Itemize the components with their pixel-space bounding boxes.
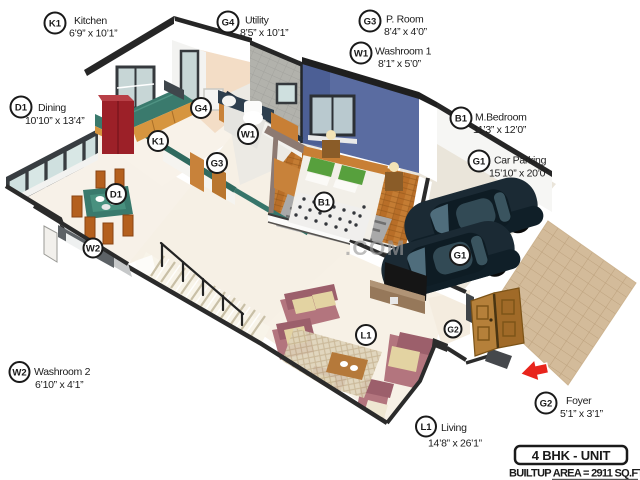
svg-text:W1: W1 [241,130,256,141]
svg-text:B1: B1 [318,198,331,209]
svg-text:G1: G1 [454,251,467,262]
svg-text:10’10” x 13’4”: 10’10” x 13’4” [25,115,85,127]
svg-text:L1: L1 [420,422,432,433]
svg-text:M.Bedroom: M.Bedroom [475,112,527,124]
svg-text:G3: G3 [364,17,377,28]
svg-text:Foyer: Foyer [566,395,592,407]
svg-text:.COM: .COM [345,237,406,260]
svg-text:11’3” x 12’0”: 11’3” x 12’0” [473,124,527,136]
svg-text:W1: W1 [354,49,369,60]
svg-text:14’8” x 26’1”: 14’8” x 26’1” [428,438,483,450]
svg-text:D1: D1 [15,103,28,114]
svg-text:P. Room: P. Room [386,14,424,26]
svg-text:8’1” x 5’0”: 8’1” x 5’0” [378,58,422,70]
svg-text:BUILTUP AREA = 2911 SQ.FT.: BUILTUP AREA = 2911 SQ.FT. [509,468,640,480]
svg-text:D1: D1 [110,190,123,201]
svg-text:Car Parking: Car Parking [494,155,547,167]
svg-text:G2: G2 [540,399,553,410]
svg-text:8’4” x 4’0”: 8’4” x 4’0” [384,26,428,38]
svg-text:G4: G4 [195,104,208,115]
svg-text:4 BHK - UNIT: 4 BHK - UNIT [532,448,611,463]
svg-text:6’10” x 4’1”: 6’10” x 4’1” [35,379,84,391]
svg-text:Washroom 2: Washroom 2 [34,366,91,378]
svg-text:B1: B1 [455,114,468,125]
svg-text:K1: K1 [152,137,165,148]
svg-text:8’5” x 10’1”: 8’5” x 10’1” [240,27,289,39]
svg-text:W2: W2 [12,368,26,379]
svg-text:Kitchen: Kitchen [74,15,107,27]
svg-text:G2: G2 [447,325,459,335]
svg-text:Living: Living [441,422,467,434]
svg-text:G1: G1 [473,157,486,168]
svg-text:Utility: Utility [245,15,270,27]
svg-text:Dining: Dining [38,102,66,114]
svg-text:G3: G3 [211,159,224,170]
svg-text:K1: K1 [49,19,62,30]
svg-text:W2: W2 [86,244,100,255]
svg-text:5’1” x 3’1”: 5’1” x 3’1” [560,408,604,420]
svg-text:15’10” x 20’0”: 15’10” x 20’0” [489,168,549,180]
svg-text:6’9” x 10’1”: 6’9” x 10’1” [69,28,118,40]
svg-text:G4: G4 [222,18,235,29]
svg-text:Washroom 1: Washroom 1 [375,46,432,58]
svg-text:L1: L1 [360,331,372,342]
